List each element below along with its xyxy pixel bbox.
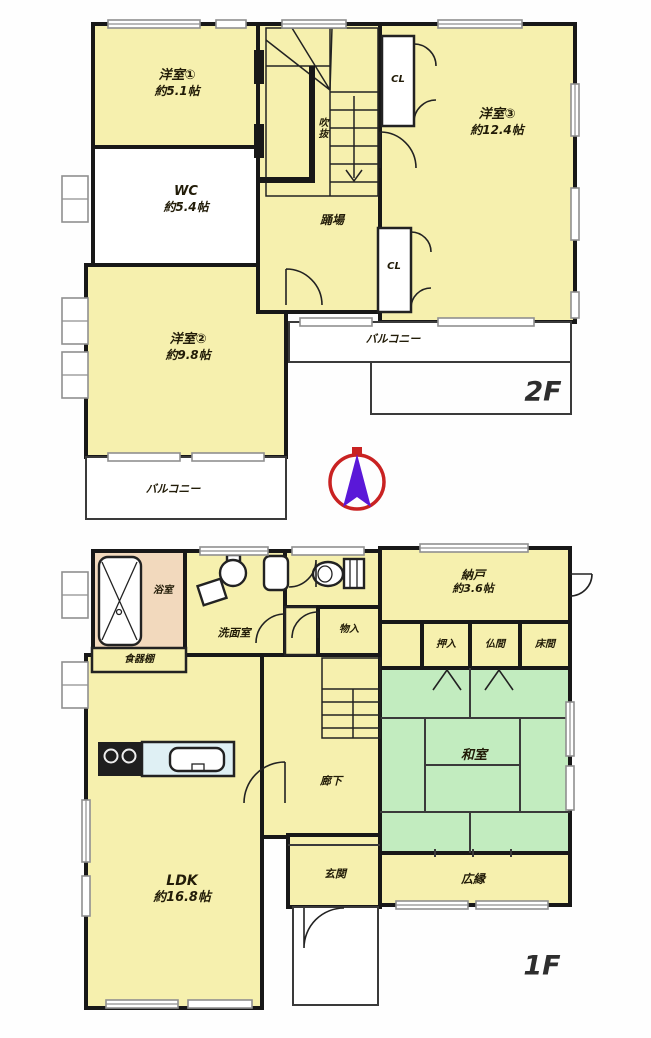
room-name: 洋室①: [154, 68, 199, 84]
room-label-storage-small: 物入: [339, 624, 359, 636]
laundry-icon: [264, 556, 288, 590]
room-name: 納戸: [452, 568, 494, 582]
room-label-wc: WC 約5.4帖: [163, 184, 208, 214]
balcony-label-right: バルコニー: [366, 332, 421, 345]
kitchen-counter: [98, 742, 234, 776]
bathtub-icon: [99, 557, 141, 645]
room-rect-corridor: [262, 655, 380, 837]
room-label-washitsu: 和室: [461, 748, 487, 764]
north-compass-icon: [330, 447, 384, 509]
room-size: 約3.6帖: [452, 583, 494, 596]
room-label-yoshitsu2: 洋室② 約9.8帖: [165, 332, 210, 362]
closet-label-cl-top: CL: [391, 74, 405, 86]
floorplan-svg: [0, 0, 651, 1038]
cupboard-label: 食器棚: [124, 654, 154, 666]
closet-label-cl-bottom: CL: [387, 261, 401, 273]
room-rect-nando-col: [380, 622, 422, 668]
room-name: 洋室③: [470, 107, 523, 123]
door-arc: [570, 574, 592, 596]
floor-2f: [62, 20, 579, 519]
room-name: 洋室②: [165, 332, 210, 348]
room-label-bath: 浴室: [153, 585, 173, 597]
room-size: 約9.8帖: [165, 348, 210, 362]
room-label-hiroen: 広縁: [461, 872, 485, 886]
floor-title-1f: 1F: [523, 951, 560, 982]
floor-title-2f: 2F: [524, 377, 561, 408]
floorplan-page: 洋室① 約5.1帖 WC 約5.4帖 洋室③ 約12.4帖 洋室② 約9.8帖 …: [0, 0, 651, 1038]
room-size: 約5.1帖: [154, 84, 199, 98]
room-rect-ldk: [86, 655, 262, 1008]
room-size: 約16.8帖: [153, 890, 211, 905]
sink-icon: [170, 748, 224, 771]
void-label: 吹抜: [315, 117, 327, 139]
room-label-nando: 納戸 約3.6帖: [452, 568, 494, 596]
wall-nub: [254, 50, 264, 84]
room-name: WC: [163, 184, 208, 200]
room-rect-lobby: [285, 607, 320, 655]
closet-label-tokonoma: 床間: [535, 639, 555, 651]
room-size: 約5.4帖: [163, 200, 208, 214]
room-label-hall: 踊場: [320, 213, 344, 227]
balcony-label-left: バルコニー: [146, 482, 201, 495]
room-rect-hall: [258, 24, 380, 312]
room-label-washroom: 洗面室: [218, 626, 251, 639]
porch-outline: [293, 907, 378, 1005]
closet-label-oshiire: 押入: [436, 639, 456, 651]
closet-label-butsuma: 仏間: [485, 639, 505, 651]
room-label-corridor: 廊下: [320, 774, 342, 787]
balcony-rect-right: [289, 322, 571, 362]
room-name: LDK: [153, 873, 211, 890]
wall-nub: [254, 124, 264, 158]
room-label-yoshitsu1: 洋室① 約5.1帖: [154, 68, 199, 98]
room-size: 約12.4帖: [470, 123, 523, 137]
room-label-ldk: LDK 約16.8帖: [153, 873, 211, 905]
room-label-genkan: 玄関: [324, 867, 346, 880]
room-label-yoshitsu3: 洋室③ 約12.4帖: [470, 107, 523, 137]
